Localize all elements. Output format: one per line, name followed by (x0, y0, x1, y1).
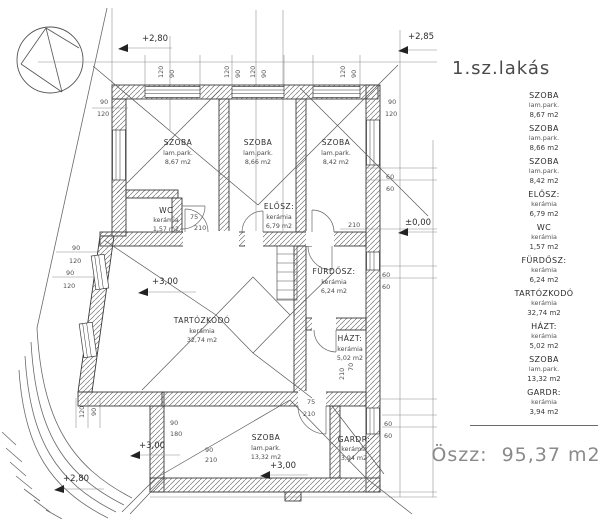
wall-wc-top (126, 190, 178, 198)
dim-label: 75 (190, 213, 198, 221)
legend-item: ELŐSZ: kerámia 6,79 m2 (488, 190, 600, 219)
dim-label: 90 (350, 70, 358, 78)
wall-bath-left (294, 246, 306, 392)
legend-room-area: 8,42 m2 (488, 176, 600, 186)
dim-label: 120 (223, 66, 231, 78)
svg-text:6,24 m2: 6,24 m2 (321, 288, 347, 295)
svg-text:kerámia: kerámia (189, 327, 215, 335)
window-room1 (145, 87, 200, 98)
legend-room-name: SZOBA (488, 124, 600, 134)
total-value: 95,37 m2 (502, 444, 600, 466)
legend-room-name: ELŐSZ: (488, 190, 600, 200)
svg-text:8,66 m2: 8,66 m2 (245, 159, 271, 166)
dim-label: 90 (234, 70, 242, 78)
legend-room-area: 6,24 m2 (488, 275, 600, 285)
legend-item: TARTÓZKODÓ kerámia 32,74 m2 (488, 289, 600, 318)
svg-text:lam.park.: lam.park. (163, 150, 193, 157)
dim-label: 90 (90, 408, 98, 416)
svg-text:lam.park.: lam.park. (243, 150, 273, 157)
dim-label: 210 (194, 224, 206, 232)
dim-label: 120 (157, 66, 165, 78)
wall-stub (285, 492, 301, 501)
legend-item: GARDR: kerámia 3,94 m2 (488, 388, 600, 417)
dim-label: 120 (63, 282, 75, 290)
legend-item: SZOBA lam.park. 13,32 m2 (488, 355, 600, 384)
legend-item: SZOBA lam.park. 8,66 m2 (488, 124, 600, 153)
dim-label: 210 (348, 221, 360, 229)
legend-room-material: lam.park. (488, 134, 600, 143)
legend-room-area: 6,79 m2 (488, 209, 600, 219)
room-label-elosz: ELŐSZ: kerámia 6,79 m2 (264, 202, 294, 230)
elevation-marker-bottom-room: +3,00 (260, 461, 308, 479)
svg-text:HÁZT:: HÁZT: (338, 334, 363, 343)
svg-text:32,74 m2: 32,74 m2 (187, 337, 217, 344)
legend-room-material: kerámia (488, 233, 600, 242)
window-wardrobe (367, 408, 380, 434)
svg-text:kerámia: kerámia (341, 445, 367, 453)
svg-text:FÜRDŐSZ:: FÜRDŐSZ: (312, 267, 355, 276)
svg-text:kerámia: kerámia (266, 213, 292, 221)
legend-items: SZOBA lam.park. 8,67 m2 SZOBA lam.park. … (440, 91, 600, 417)
dim-label: 90 (205, 446, 213, 454)
dim-label: 90 (388, 98, 396, 106)
window-right-upper (367, 120, 380, 165)
dim-label: 210 (303, 410, 315, 418)
legend-room-material: lam.park. (488, 167, 600, 176)
legend-room-name: SZOBA (488, 355, 600, 365)
svg-text:SZOBA: SZOBA (322, 138, 351, 147)
total-label: Öszz: (431, 444, 487, 466)
svg-text:lam.park.: lam.park. (321, 150, 351, 157)
svg-text:lam.park.: lam.park. (251, 445, 281, 452)
dim-label: 120 (97, 110, 109, 118)
legend-room-area: 13,32 m2 (488, 374, 600, 384)
legend-room-name: FÜRDŐSZ: (488, 256, 600, 266)
legend-room-material: kerámia (488, 200, 600, 209)
legend-item: SZOBA lam.park. 8,42 m2 (488, 157, 600, 186)
svg-text:3,94 m2: 3,94 m2 (341, 455, 367, 462)
dim-label: 120 (69, 257, 81, 265)
legend-room-material: lam.park. (488, 365, 600, 374)
elevation-value: +2,80 (142, 34, 168, 44)
svg-text:5,02 m2: 5,02 m2 (337, 355, 363, 362)
svg-text:13,32 m2: 13,32 m2 (251, 454, 281, 461)
room-label-szoba4: SZOBA lam.park. 13,32 m2 (251, 433, 281, 461)
elevation-value: ±0,00 (405, 218, 431, 228)
legend-room-area: 3,94 m2 (488, 407, 600, 417)
window-room3 (313, 87, 360, 98)
dim-label: 90 (260, 70, 268, 78)
svg-text:WC: WC (159, 206, 173, 215)
north-arrow-icon (17, 27, 83, 93)
wall-block-top (162, 392, 366, 406)
dim-label: 120 (339, 66, 347, 78)
legend-room-name: HÁZT: (488, 322, 600, 332)
elevation-value: +3,00 (152, 277, 178, 287)
total-area: Öszz:95,37 m2 (426, 444, 600, 466)
legend-room-name: SZOBA (488, 157, 600, 167)
svg-text:TARTÓZKODÓ: TARTÓZKODÓ (173, 316, 231, 325)
legend-room-area: 5,02 m2 (488, 341, 600, 351)
dim-label: 75 (307, 398, 315, 406)
legend-room-material: kerámia (488, 299, 600, 308)
window-left (113, 130, 126, 180)
legend-room-area: 1,57 m2 (488, 242, 600, 252)
dim-label: 90 (66, 269, 74, 277)
svg-text:SZOBA: SZOBA (252, 433, 281, 442)
dim-label: 120 (78, 406, 86, 418)
svg-text:1,57 m2: 1,57 m2 (153, 226, 179, 233)
svg-text:GARDR:: GARDR: (338, 435, 370, 444)
dim-label: 90 (72, 244, 80, 252)
room-label-szoba2: SZOBA lam.park. 8,66 m2 (243, 138, 273, 166)
dim-label: 60 (386, 173, 394, 181)
elevation-value: +2,80 (63, 474, 89, 484)
legend-room-material: lam.park. (488, 101, 600, 110)
dim-label: 90 (168, 70, 176, 78)
dim-label: 90 (170, 419, 178, 427)
wall-living-bottom (78, 392, 164, 406)
legend-room-name: SZOBA (488, 91, 600, 101)
dim-label: 120 (249, 66, 257, 78)
dim-label: 60 (382, 283, 390, 291)
dim-label: 90 (100, 98, 108, 106)
svg-text:kerámia: kerámia (337, 345, 363, 353)
legend-divider (470, 425, 598, 426)
room-label-hazt: HÁZT: kerámia 5,02 m2 (337, 334, 363, 362)
legend-room-name: TARTÓZKODÓ (488, 289, 600, 299)
legend-item: WC kerámia 1,57 m2 (488, 223, 600, 252)
dim-label: 60 (386, 185, 394, 193)
dim-label: 70 (347, 363, 355, 371)
legend-room-material: kerámia (488, 266, 600, 275)
room-label-furdoszoba: FÜRDŐSZ: kerámia 6,24 m2 (312, 267, 355, 295)
legend-room-name: GARDR: (488, 388, 600, 398)
legend-room-area: 8,67 m2 (488, 110, 600, 120)
dim-label: 210 (338, 368, 346, 380)
legend-room-area: 32,74 m2 (488, 308, 600, 318)
elevation-value: +2,85 (408, 32, 434, 42)
room-label-szoba3: SZOBA lam.park. 8,42 m2 (321, 138, 351, 166)
legend-item: HÁZT: kerámia 5,02 m2 (488, 322, 600, 351)
legend-room-material: kerámia (488, 398, 600, 407)
elevation-marker-living: +3,00 (138, 277, 196, 296)
room-label-szoba1: SZOBA lam.park. 8,67 m2 (163, 138, 193, 166)
elevation-marker-top-right: +2,85 (398, 32, 437, 54)
legend-item: SZOBA lam.park. 8,67 m2 (488, 91, 600, 120)
svg-text:SZOBA: SZOBA (244, 138, 273, 147)
room-label-gardrob: GARDR: kerámia 3,94 m2 (338, 435, 370, 462)
dim-label: 60 (384, 432, 392, 440)
legend-room-name: WC (488, 223, 600, 233)
dim-label: 60 (384, 420, 392, 428)
svg-text:6,79 m2: 6,79 m2 (266, 223, 292, 230)
elevation-marker-top-left: +2,80 (118, 34, 172, 52)
dim-label: 120 (385, 110, 397, 118)
partition-room1-room2 (219, 99, 229, 232)
legend-room-material: kerámia (488, 332, 600, 341)
elevation-value: +3,00 (139, 441, 165, 451)
dim-label: 60 (382, 271, 390, 279)
elevation-marker-garden: +2,80 (54, 474, 104, 493)
svg-text:SZOBA: SZOBA (164, 138, 193, 147)
window-right-middle (367, 252, 380, 270)
dim-label: 210 (205, 456, 217, 464)
legend-item: FÜRDŐSZ: kerámia 6,24 m2 (488, 256, 600, 285)
svg-text:8,67 m2: 8,67 m2 (165, 159, 191, 166)
svg-text:ELŐSZ:: ELŐSZ: (264, 202, 294, 211)
legend-room-area: 8,66 m2 (488, 143, 600, 153)
room-label-tartozkodo: TARTÓZKODÓ kerámia 32,74 m2 (173, 316, 231, 344)
floor-plan-sheet: +2,80 +2,85 ±0,00 +3,00 +3,00 +3,00 (0, 0, 600, 519)
elevation-marker-datum: ±0,00 (398, 218, 437, 236)
legend-panel: 1.sz.lakás SZOBA lam.park. 8,67 m2 SZOBA… (440, 0, 600, 519)
dim-label: 180 (170, 430, 182, 438)
svg-text:kerámia: kerámia (153, 216, 179, 224)
svg-text:8,42 m2: 8,42 m2 (323, 159, 349, 166)
elevation-value: +3,00 (270, 461, 296, 471)
window-room2 (232, 87, 284, 98)
wall-bottom (150, 478, 380, 492)
svg-text:kerámia: kerámia (321, 278, 347, 286)
apartment-title: 1.sz.lakás (452, 58, 600, 79)
